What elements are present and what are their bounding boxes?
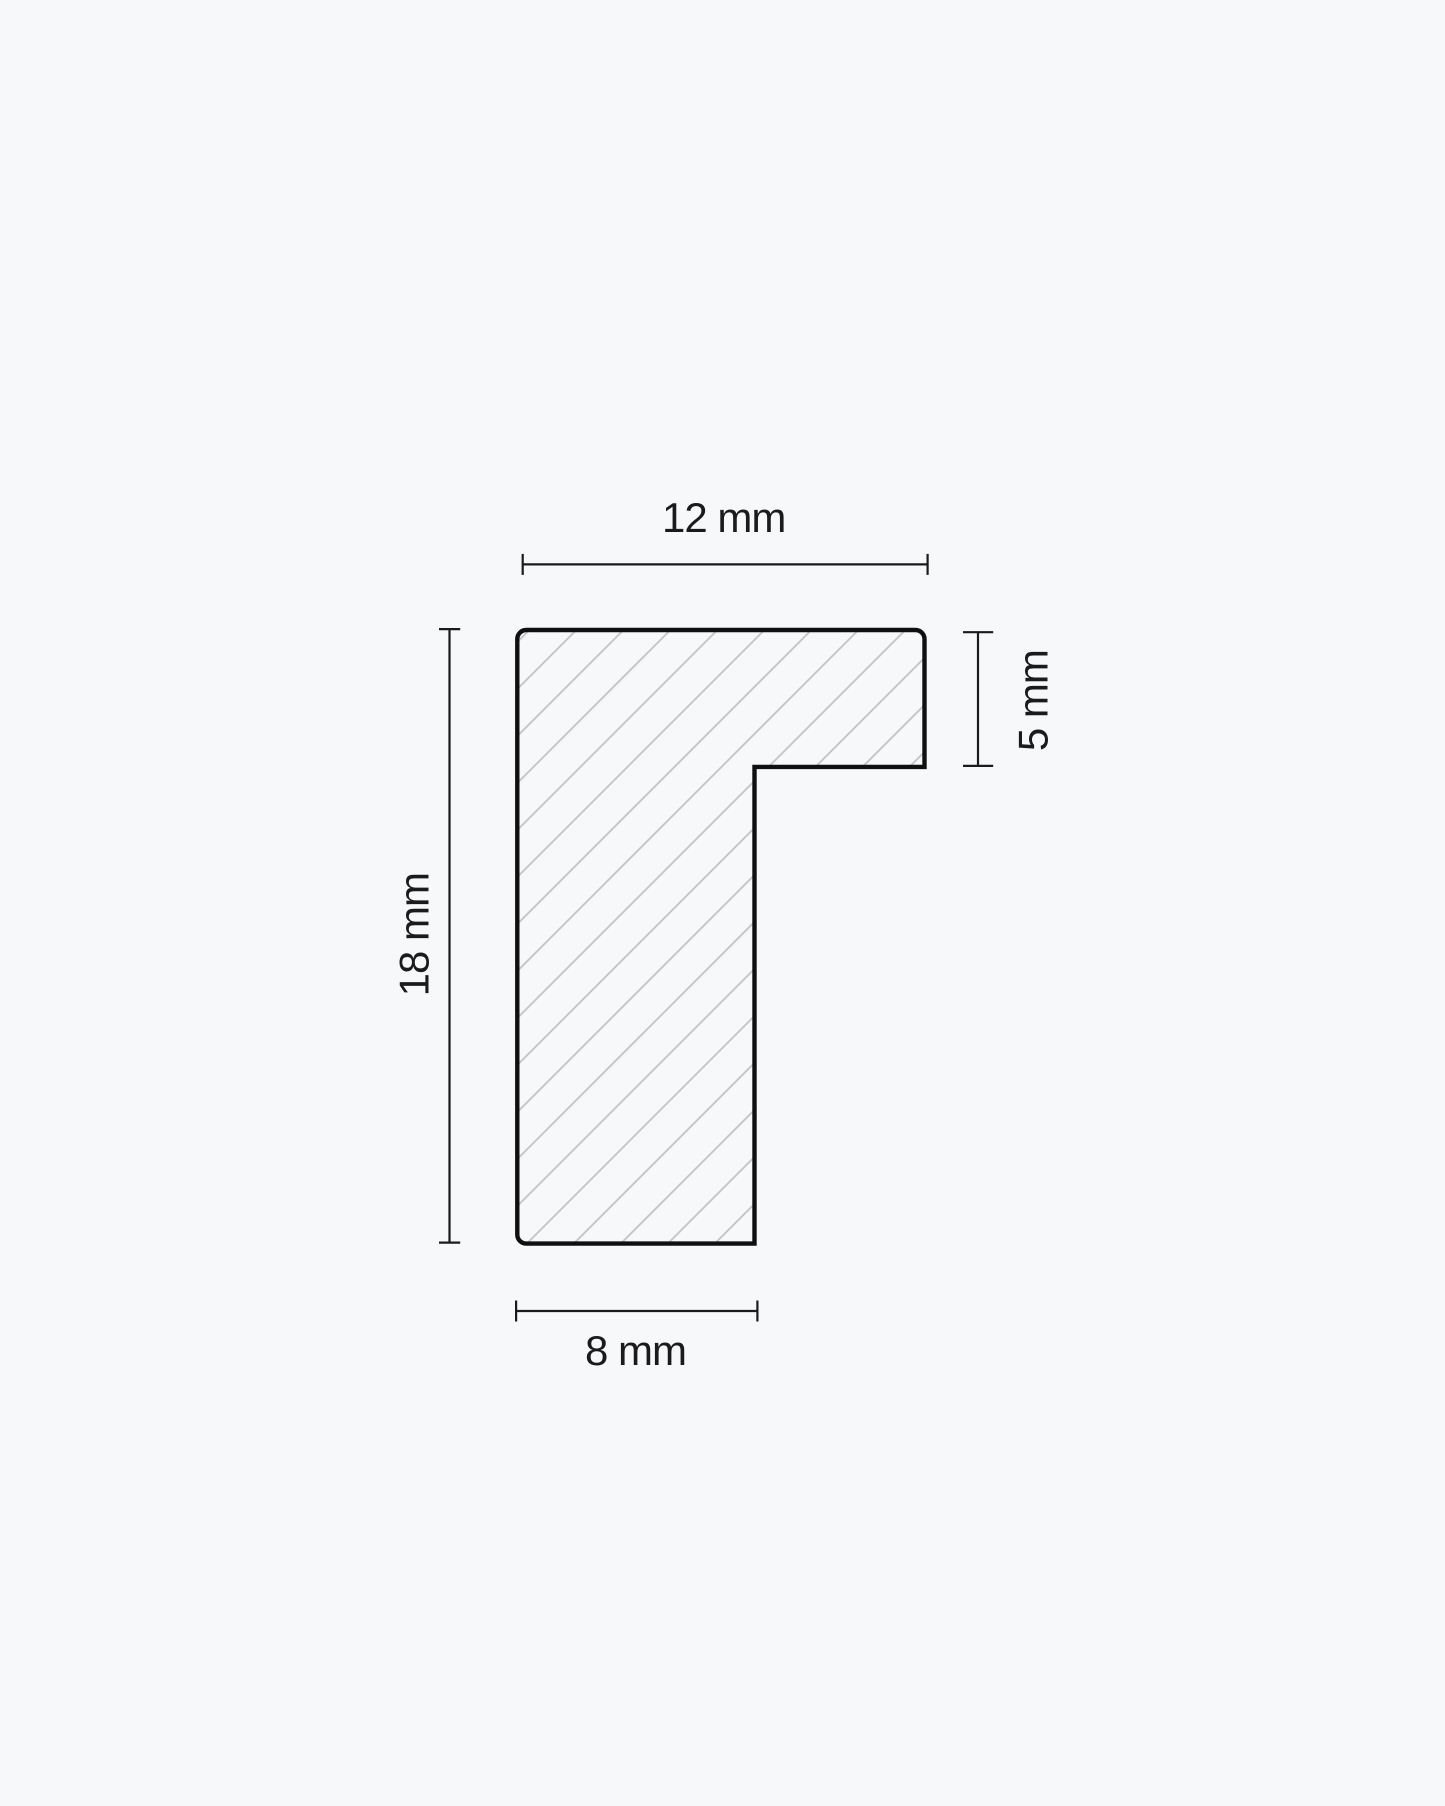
svg-text:5 mm: 5 mm	[1009, 650, 1056, 751]
svg-text:8 mm: 8 mm	[585, 1327, 686, 1374]
svg-text:12 mm: 12 mm	[662, 494, 785, 541]
svg-text:18 mm: 18 mm	[390, 873, 437, 996]
